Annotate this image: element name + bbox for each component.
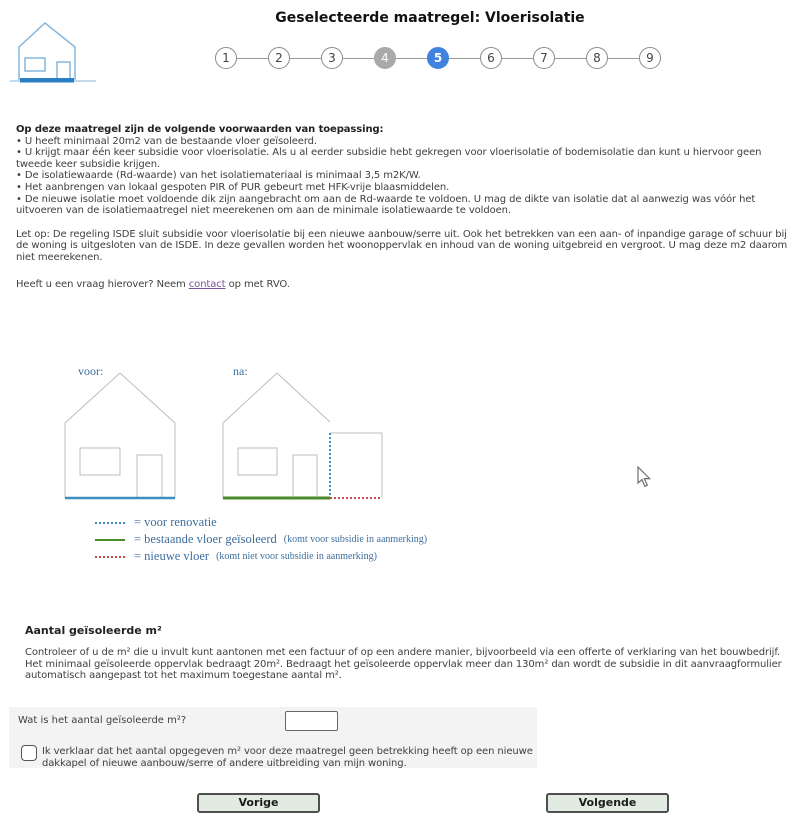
- step-2: 2: [268, 47, 290, 69]
- page: Geselecteerde maatregel: Vloerisolatie 1…: [0, 0, 800, 821]
- diagram-before-label: voor:: [78, 364, 103, 378]
- contact-link[interactable]: contact: [189, 279, 226, 290]
- step-4: 4: [374, 47, 396, 69]
- conditions-intro: Op deze maatregel zijn de volgende voorw…: [16, 124, 790, 136]
- condition-bullet: • De isolatiewaarde (Rd-waarde) van het …: [16, 170, 790, 182]
- step-connector: [237, 58, 268, 59]
- step-5-current: 5: [427, 47, 449, 69]
- legend-note: (komt voor subsidie in aanmerking): [284, 534, 427, 545]
- condition-bullet: • Het aanbrengen van lokaal gespoten PIR…: [16, 182, 790, 194]
- diagram-after-label: na:: [233, 364, 248, 378]
- declaration-checkbox[interactable]: [21, 745, 37, 761]
- contact-line-before: Heeft u een vraag hierover? Neem: [16, 279, 189, 290]
- contact-line-after: op met RVO.: [226, 279, 290, 290]
- legend-row-before-renovation: = voor renovatie: [95, 514, 427, 531]
- step-connector: [290, 58, 321, 59]
- m2-question-label: Wat is het aantal geïsoleerde m²?: [18, 715, 186, 726]
- m2-form-panel: Wat is het aantal geïsoleerde m²? Ik ver…: [9, 707, 537, 768]
- blue-dotted-line-swatch: [95, 522, 125, 524]
- legend-label: = nieuwe vloer: [134, 549, 209, 564]
- step-9: 9: [639, 47, 661, 69]
- diagram-legend: = voor renovatie = bestaande vloer geïso…: [95, 514, 427, 565]
- step-connector: [449, 58, 480, 59]
- previous-button[interactable]: Vorige: [197, 793, 320, 813]
- step-connector: [608, 58, 639, 59]
- step-connector: [396, 58, 427, 59]
- green-solid-line-swatch: [95, 539, 125, 541]
- conditions-text: Op deze maatregel zijn de volgende voorw…: [16, 124, 790, 290]
- contact-line: Heeft u een vraag hierover? Neem contact…: [16, 279, 790, 291]
- condition-bullet: • De nieuwe isolatie moet voldoende dik …: [16, 194, 790, 217]
- next-button[interactable]: Volgende: [546, 793, 669, 813]
- before-after-diagram: voor: na:: [60, 358, 400, 508]
- step-6: 6: [480, 47, 502, 69]
- step-7: 7: [533, 47, 555, 69]
- step-connector: [502, 58, 533, 59]
- condition-bullet: • U heeft minimaal 20m2 van de bestaande…: [16, 136, 790, 148]
- legend-label: = voor renovatie: [134, 515, 217, 530]
- m2-amount-input[interactable]: [285, 711, 338, 731]
- m2-section-heading: Aantal geïsoleerde m²: [25, 624, 162, 637]
- step-connector: [343, 58, 374, 59]
- condition-bullet: • U krijgt maar één keer subsidie voor v…: [16, 147, 790, 170]
- step-indicator: 1 2 3 4 5 6 7 8 9: [215, 47, 661, 69]
- legend-row-existing-floor: = bestaande vloer geïsoleerd (komt voor …: [95, 531, 427, 548]
- m2-section-body: Controleer of u de m² die u invult kunt …: [25, 647, 787, 682]
- page-title: Geselecteerde maatregel: Vloerisolatie: [70, 10, 790, 26]
- step-1: 1: [215, 47, 237, 69]
- step-3: 3: [321, 47, 343, 69]
- step-8: 8: [586, 47, 608, 69]
- legend-label: = bestaande vloer geïsoleerd: [134, 532, 277, 547]
- step-connector: [555, 58, 586, 59]
- red-dotted-line-swatch: [95, 556, 125, 558]
- legend-row-new-floor: = nieuwe vloer (komt niet voor subsidie …: [95, 548, 427, 565]
- house-floor-insulation-icon: [8, 14, 103, 98]
- isde-note: Let op: De regeling ISDE sluit subsidie …: [16, 229, 790, 264]
- declaration-checkbox-label[interactable]: Ik verklaar dat het aantal opgegeven m² …: [42, 746, 536, 770]
- mouse-cursor-icon: [636, 466, 652, 492]
- legend-note: (komt niet voor subsidie in aanmerking): [216, 551, 377, 562]
